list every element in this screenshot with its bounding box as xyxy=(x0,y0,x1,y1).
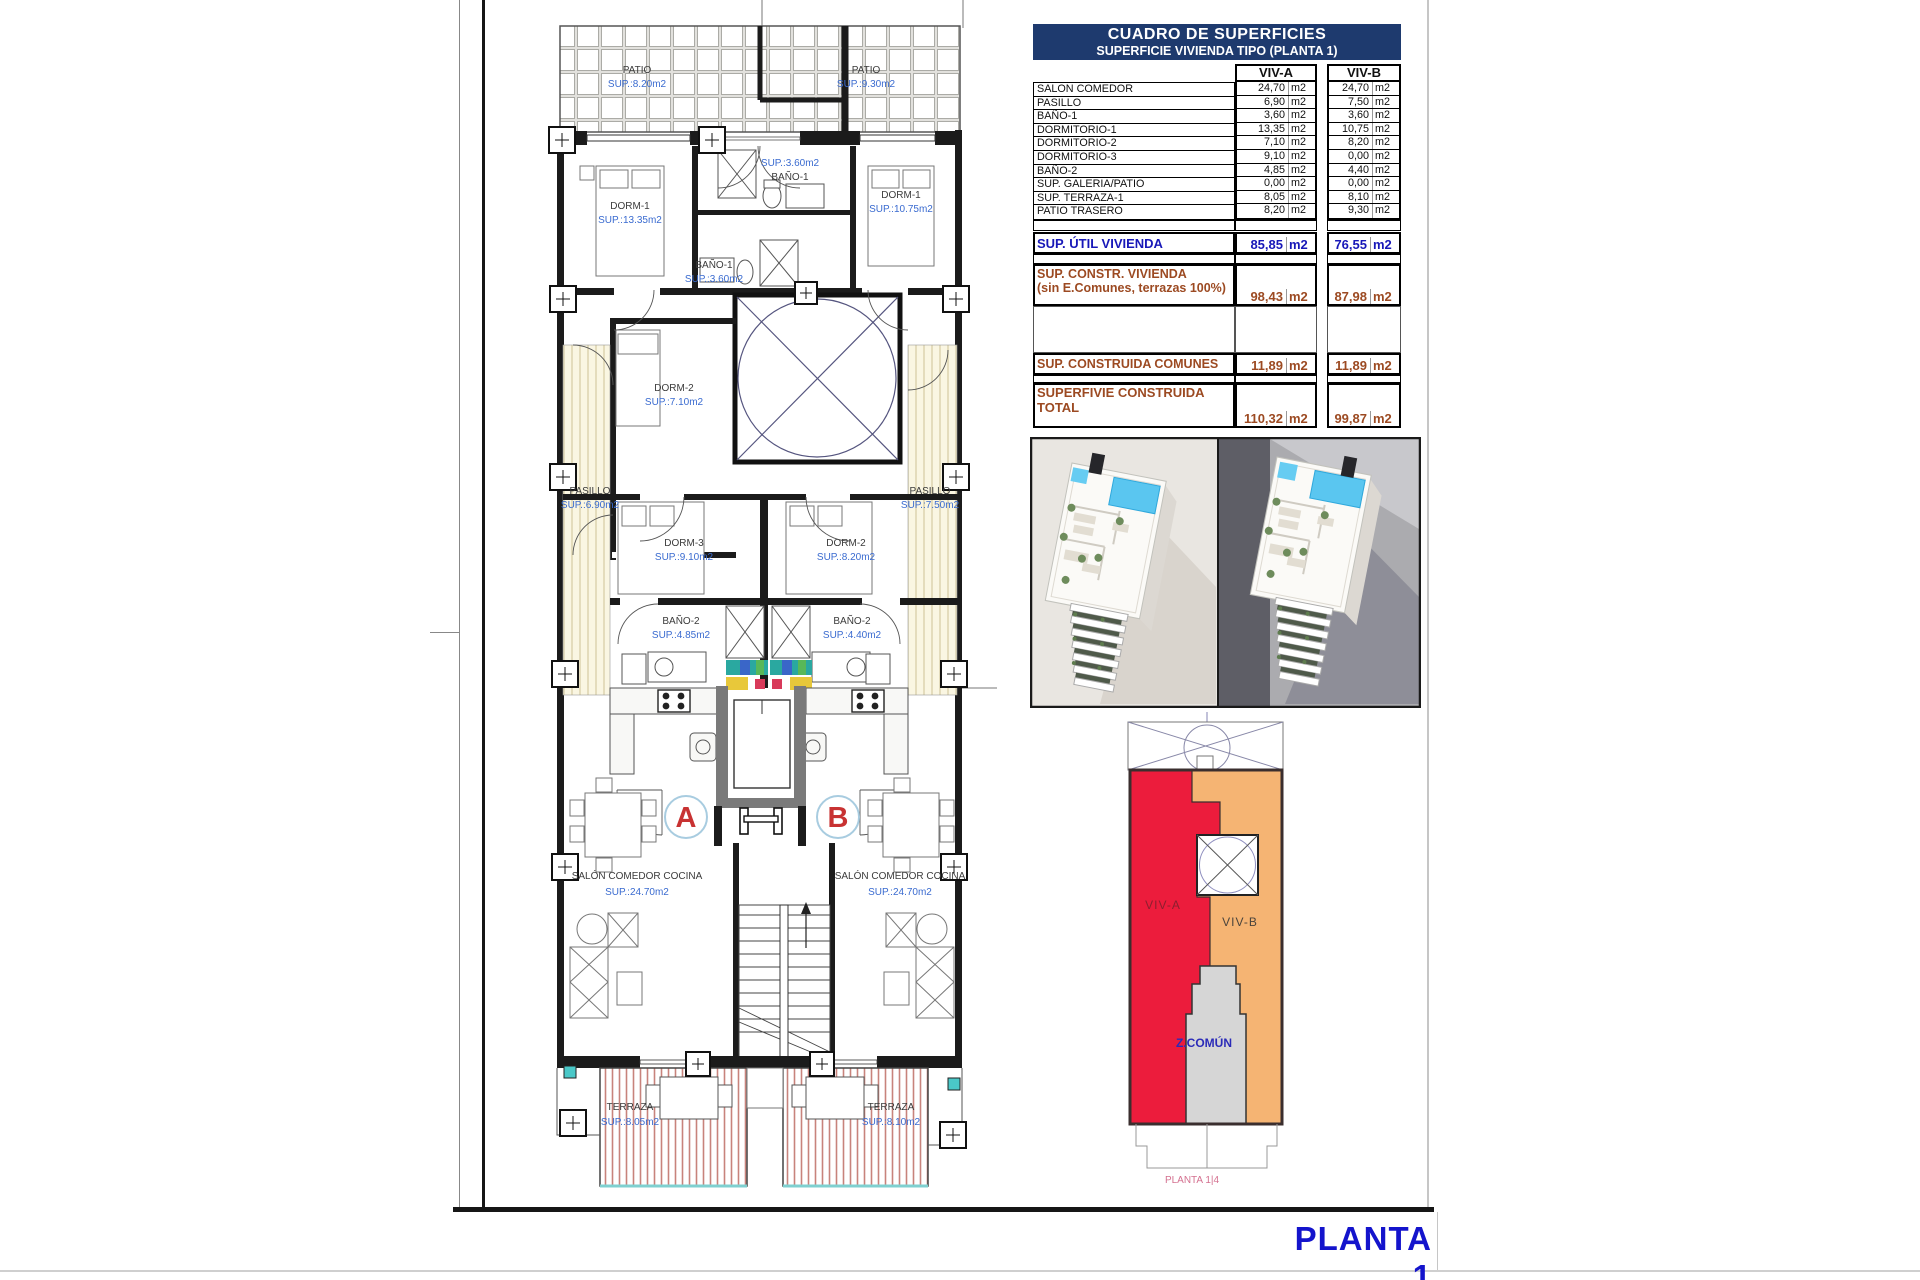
constr-label: SUP. CONSTR. VIVIENDA (sin E.Comunes, te… xyxy=(1033,264,1235,306)
value-cell: 24,70m2 xyxy=(1237,82,1315,96)
spacer xyxy=(1235,254,1317,264)
value-cell: 9,10m2 xyxy=(1237,150,1315,164)
stairs xyxy=(733,843,835,1065)
row-label: DORMITORIO-3 xyxy=(1034,151,1234,165)
diagram-elevator xyxy=(1197,835,1258,895)
value-cell: 9,30m2 xyxy=(1329,204,1399,218)
dorm3-a-name: DORM-3 xyxy=(664,538,704,549)
util-label: SUP. ÚTIL VIVIENDA xyxy=(1033,232,1235,254)
spacer xyxy=(1033,306,1235,353)
row-label: DORMITORIO-2 xyxy=(1034,137,1234,151)
salon-a-sup: SUP.:24.70m2 xyxy=(605,887,669,898)
salon-b-sup: SUP.:24.70m2 xyxy=(868,887,932,898)
value-cell: 0,00m2 xyxy=(1329,150,1399,164)
pasillo-b-sup: SUP.:7.50m2 xyxy=(901,500,960,511)
surface-table: CUADRO DE SUPERFICIES SUPERFICIE VIVIEND… xyxy=(1033,24,1401,436)
value-cell: 8,20m2 xyxy=(1329,136,1399,150)
bano1-a-sup: SUP.:3.60m2 xyxy=(685,274,744,285)
spacer xyxy=(1033,375,1235,383)
row-label: BAÑO-2 xyxy=(1034,165,1234,179)
spacer xyxy=(1235,306,1317,353)
spacer xyxy=(1327,220,1401,231)
terraza-a-name: TERRAZA xyxy=(607,1102,654,1113)
terraza-b-sup: SUP.:8.10m2 xyxy=(862,1117,921,1128)
table-title: CUADRO DE SUPERFICIES xyxy=(1033,26,1401,44)
viv-a-label: VIV-A xyxy=(1145,898,1181,912)
bano2-a-sup: SUP.:4.85m2 xyxy=(652,630,711,641)
bano2-b-name: BAÑO-2 xyxy=(833,614,871,627)
total-value-b: 99,87m2 xyxy=(1327,383,1401,428)
row-label: DORMITORIO-1 xyxy=(1034,124,1234,138)
row-label: PATIO TRASERO xyxy=(1034,205,1234,219)
spacer xyxy=(1033,254,1235,264)
col-header-viv-a: VIV-A xyxy=(1235,64,1317,82)
pasillo-a-sup: SUP.:6.90m2 xyxy=(561,500,620,511)
viv-a-value-column: 24,70m2 6,90m2 3,60m2 13,35m2 7,10m2 9,1… xyxy=(1235,82,1317,220)
total-label: SUPERFIVIE CONSTRUIDA TOTAL xyxy=(1033,383,1235,428)
pasillo-a-strip xyxy=(563,345,610,695)
bano2-a-name: BAÑO-2 xyxy=(662,614,700,627)
dorm2-b-sup: SUP.:8.20m2 xyxy=(817,552,876,563)
bano2-b-sup: SUP.:4.40m2 xyxy=(823,630,882,641)
table-header: CUADRO DE SUPERFICIES SUPERFICIE VIVIEND… xyxy=(1033,24,1401,60)
value-cell: 7,10m2 xyxy=(1237,136,1315,150)
spacer xyxy=(1235,375,1317,383)
value-cell: 3,60m2 xyxy=(1237,109,1315,123)
dorm1-b-name: DORM-1 xyxy=(881,190,921,201)
facade-top xyxy=(557,131,962,145)
row-label: SUP. GALERIA/PATIO xyxy=(1034,178,1234,192)
patio-b-name: PATIO xyxy=(852,65,881,76)
floor-plan: A B xyxy=(455,0,1000,1215)
frame-right-border xyxy=(1427,0,1429,1207)
dorm1-b-sup: SUP.:10.75m2 xyxy=(869,204,933,215)
dorm1-a-sup: SUP.:13.35m2 xyxy=(598,215,662,226)
diagram-base-outline xyxy=(1136,1124,1277,1168)
comunes-value-a: 11,89m2 xyxy=(1235,353,1317,375)
unit-a-letter: A xyxy=(676,802,697,834)
row-label: PASILLO xyxy=(1034,97,1234,111)
viv-b-label: VIV-B xyxy=(1222,915,1258,929)
comunes-label: SUP. CONSTRUIDA COMUNES xyxy=(1033,353,1235,375)
terraza-b-name: TERRAZA xyxy=(868,1102,915,1113)
row-label: BAÑO-1 xyxy=(1034,110,1234,124)
patio-b-sup: SUP.:9.30m2 xyxy=(837,79,896,90)
bano1-b-name: BAÑO-1 xyxy=(771,170,809,183)
patio-a-name: PATIO xyxy=(623,65,652,76)
diagram-caption: PLANTA 1|4 xyxy=(1165,1175,1220,1186)
salon-a-name: SALÓN COMEDOR COCINA xyxy=(572,869,703,882)
elevator-shaft xyxy=(716,686,806,808)
dorm2-b-name: DORM-2 xyxy=(826,538,866,549)
pasillo-a-name: PASILLO xyxy=(570,486,611,497)
pasillo-b-name: PASILLO xyxy=(910,486,951,497)
spacer xyxy=(1327,306,1401,353)
value-cell: 0,00m2 xyxy=(1237,177,1315,191)
mosaic-tiles xyxy=(726,660,812,690)
util-value-b: 76,55m2 xyxy=(1327,232,1401,254)
value-cell: 6,90m2 xyxy=(1237,96,1315,110)
value-cell: 13,35m2 xyxy=(1237,123,1315,137)
bano1-a-name: BAÑO-1 xyxy=(695,258,733,271)
stair-core xyxy=(735,295,900,462)
value-cell: 10,75m2 xyxy=(1329,123,1399,137)
salon-b-name: SALÓN COMEDOR COCINA xyxy=(835,869,966,882)
table-subtitle: SUPERFICIE VIVIENDA TIPO (PLANTA 1) xyxy=(1033,44,1401,58)
row-label: SALON COMEDOR xyxy=(1034,83,1234,97)
dorm2-a-sup: SUP.:7.10m2 xyxy=(645,397,704,408)
row-label: SUP. TERRAZA-1 xyxy=(1034,192,1234,206)
unit-b-letter: B xyxy=(828,802,849,834)
spacer xyxy=(1327,254,1401,264)
comun-label: Z.COMÚN xyxy=(1176,1035,1232,1050)
sheet-title: PLANTA 1 xyxy=(1280,1220,1432,1280)
total-value-a: 110,32m2 xyxy=(1235,383,1317,428)
col-header-viv-b: VIV-B xyxy=(1327,64,1401,82)
dorm3-a-sup: SUP.:9.10m2 xyxy=(655,552,714,563)
render-views xyxy=(1030,437,1421,708)
value-cell: 0,00m2 xyxy=(1329,177,1399,191)
entry-lobby xyxy=(714,806,806,846)
value-cell: 3,60m2 xyxy=(1329,109,1399,123)
dorm1-a-name: DORM-1 xyxy=(610,201,650,212)
bano1-b-sup: SUP.:3.60m2 xyxy=(761,158,820,169)
row-label-column: SALON COMEDOR PASILLO BAÑO-1 DORMITORIO-… xyxy=(1033,82,1235,220)
bed-dorm1-b xyxy=(868,166,934,266)
value-cell: 4,85m2 xyxy=(1237,164,1315,178)
sheet-bottom-rule xyxy=(0,1270,1920,1272)
pasillo-b-strip xyxy=(908,345,957,695)
value-cell: 4,40m2 xyxy=(1329,164,1399,178)
value-cell: 7,50m2 xyxy=(1329,96,1399,110)
terraza-a-sup: SUP.:8.05m2 xyxy=(601,1117,660,1128)
patio-a-sup: SUP.:8.20m2 xyxy=(608,79,667,90)
value-cell: 8,05m2 xyxy=(1237,191,1315,205)
spacer xyxy=(1033,220,1235,231)
value-cell: 8,10m2 xyxy=(1329,191,1399,205)
util-value-a: 85,85m2 xyxy=(1235,232,1317,254)
spacer xyxy=(1235,220,1317,231)
constr-value-b: 87,98m2 xyxy=(1327,264,1401,306)
drawing-sheet: A B xyxy=(0,0,1920,1280)
spacer xyxy=(1327,375,1401,383)
facade-bottom xyxy=(557,1056,962,1068)
viv-b-value-column: 24,70m2 7,50m2 3,60m2 10,75m2 8,20m2 0,0… xyxy=(1327,82,1401,220)
diagram-patio-outline xyxy=(1128,722,1283,771)
unit-key-diagram: VIV-A VIV-B Z.COMÚN PLANTA 1|4 xyxy=(1115,705,1300,1195)
dorm2-a-name: DORM-2 xyxy=(654,383,694,394)
frame-bottom-right-stub xyxy=(1437,1212,1438,1272)
value-cell: 8,20m2 xyxy=(1237,204,1315,218)
constr-value-a: 98,43m2 xyxy=(1235,264,1317,306)
value-cell: 24,70m2 xyxy=(1329,82,1399,96)
comunes-value-b: 11,89m2 xyxy=(1327,353,1401,375)
